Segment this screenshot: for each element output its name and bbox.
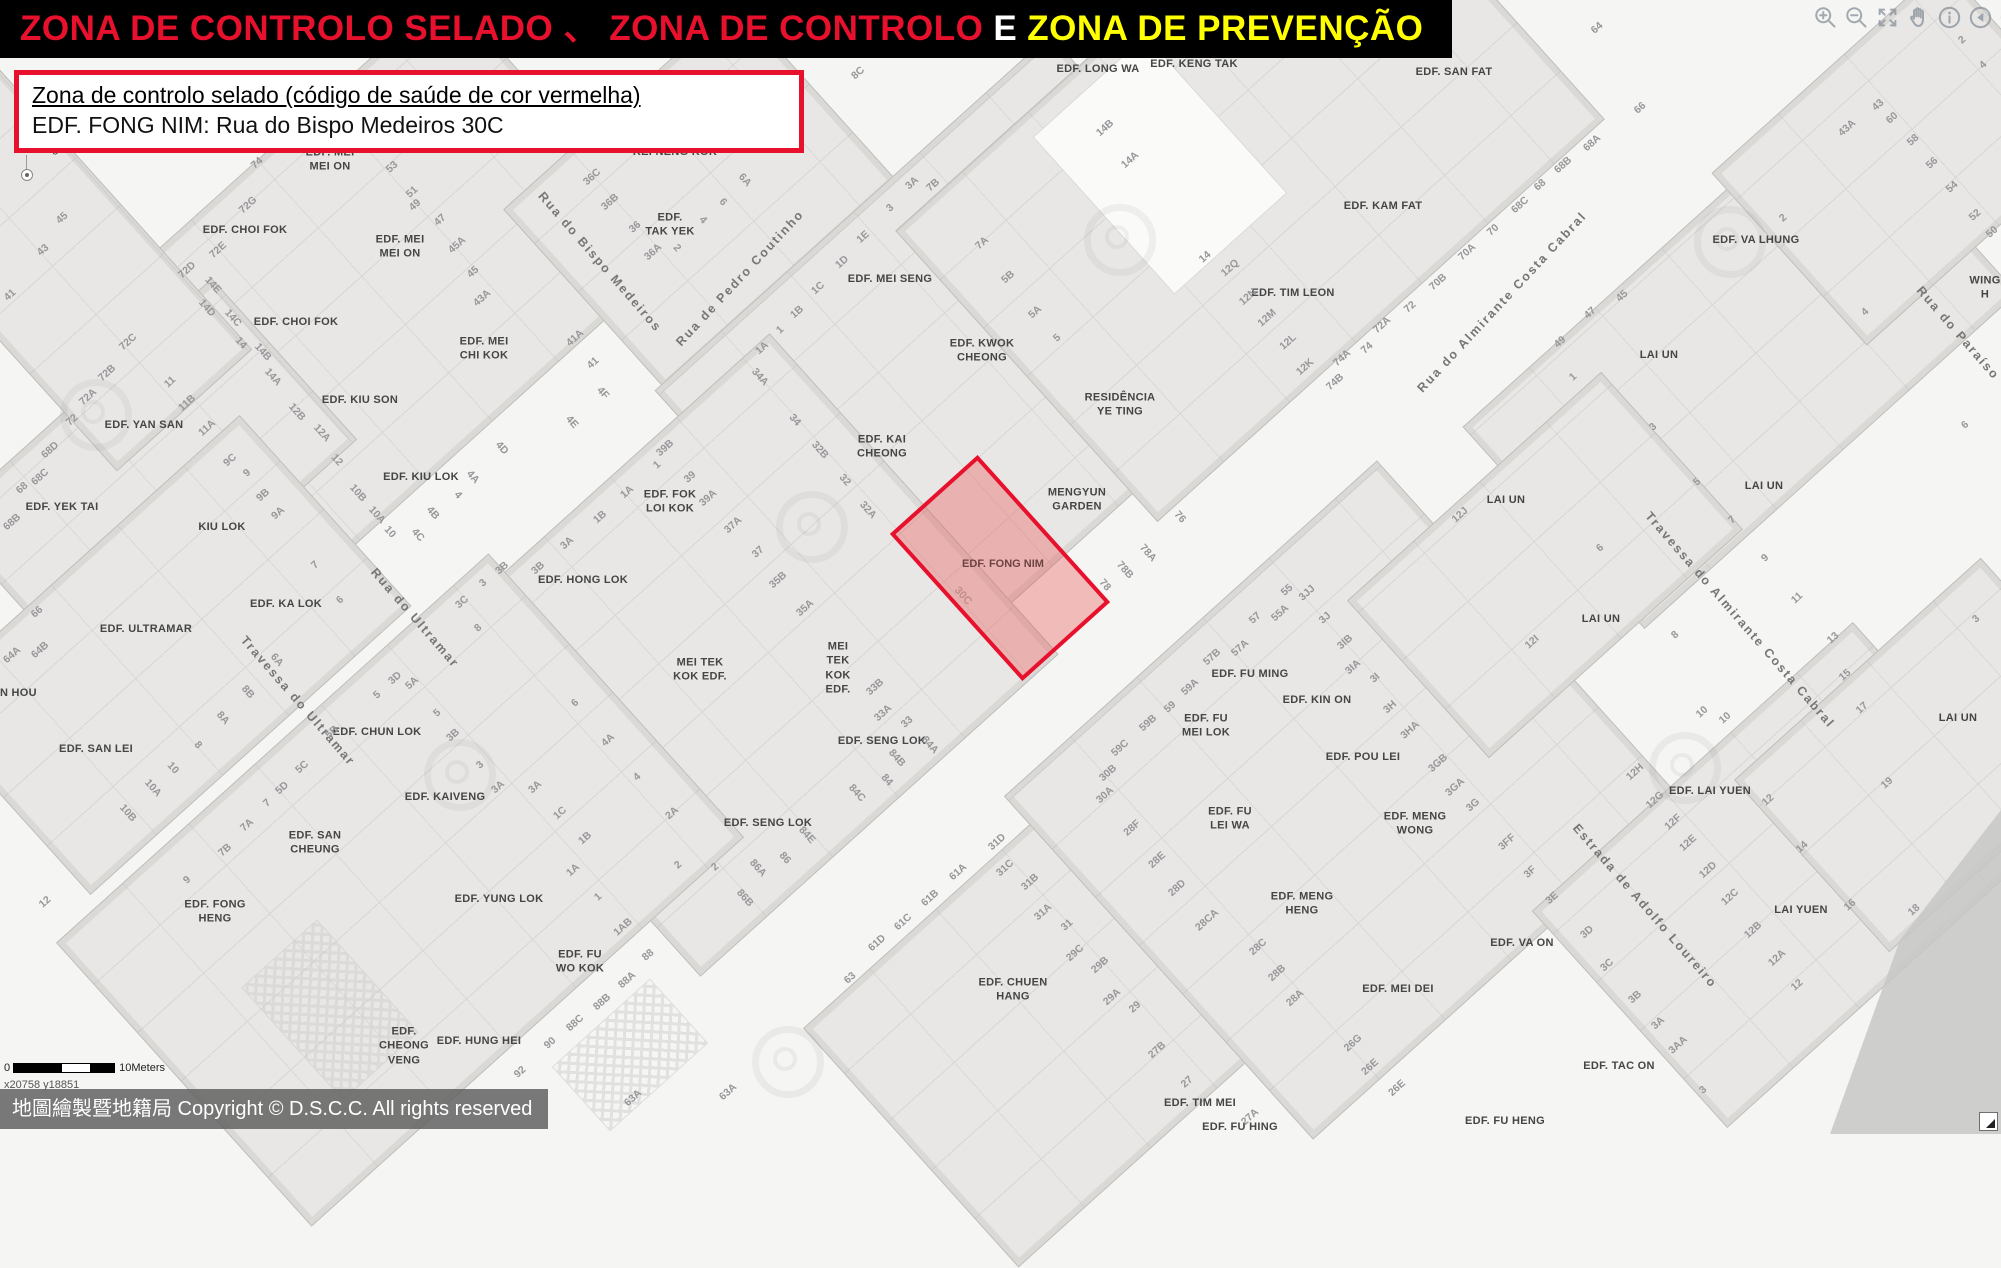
building-label: EDF. MEI SENG (848, 272, 933, 286)
lot-number: 66 (1632, 100, 1649, 117)
banner-white-text: E (983, 9, 1027, 48)
watermark-icon (776, 491, 848, 563)
building-label: LAI YUEN (1774, 903, 1828, 917)
lot-number: 88C (564, 1012, 586, 1034)
watermark-icon (752, 1026, 824, 1098)
scale-start-label: 0 (4, 1062, 10, 1074)
identify-button[interactable] (1936, 4, 1963, 31)
overview-map-toggle[interactable] (1979, 1112, 1998, 1131)
building-label: EDF. FU LEI WA (1208, 805, 1252, 834)
lot-number: 61A (947, 861, 969, 883)
building-label: EDF. KWOK CHEONG (950, 337, 1014, 366)
building-label: EDF. ULTRAMAR (100, 622, 192, 636)
lot-number: 11 (1789, 590, 1805, 606)
building-label: LAI UN (1939, 711, 1977, 725)
title-banner: ZONA DE CONTROLO SELADO 、 ZONA DE CONTRO… (0, 0, 1452, 58)
building-label: EDF. YUNG LOK (455, 892, 544, 906)
building-label: EDF. TAK YEK (645, 211, 694, 240)
lot-number: 10 (1694, 704, 1711, 721)
building-label: EDF. SAN LEI (59, 742, 133, 756)
lot-number: 72 (1402, 299, 1419, 316)
lot-number: 10 (382, 524, 399, 541)
building-label: MEI TEK KOK EDF. (825, 639, 850, 696)
building-label: EDF. KA LOK (250, 597, 322, 611)
building-label: EDF. MENG WONG (1384, 810, 1447, 839)
building-label: EDF. KAIVENG (405, 790, 486, 804)
lot-number: 88A (616, 969, 638, 991)
lot-number: 88 (640, 947, 657, 964)
building-label: LAI UN (1582, 612, 1620, 626)
info-line-zone: Zona de controlo selado (código de saúde… (32, 82, 786, 109)
building-label: MEI TEK KOK EDF. (673, 656, 727, 685)
building-label: ON HOU (0, 686, 37, 700)
building-label: EDF. MEI DEI (1362, 982, 1433, 996)
building-label: EDF. LAI YUEN (1669, 784, 1751, 798)
building-label: EDF. YAN SAN (105, 418, 184, 432)
building-label: EDF. CHEONG VENG (379, 1025, 429, 1068)
lot-number: 74 (1359, 340, 1376, 357)
lot-number: 78B (1114, 559, 1136, 581)
building-label: EDF. FU WO KOK (556, 948, 604, 977)
info-line-address: EDF. FONG NIM: Rua do Bispo Medeiros 30C (32, 112, 786, 139)
building-label: RESIDÊNCIA YE TING (1085, 391, 1156, 420)
sealed-zone-label: EDF. FONG NIM (962, 558, 1044, 570)
building-label: EDF. MENG HENG (1271, 890, 1334, 919)
building-label: EDF. HONG LOK (538, 573, 628, 587)
zoom-in-button[interactable] (1812, 4, 1839, 31)
map-toolbar (1812, 4, 2001, 31)
building-label: EDF. POU LEI (1326, 750, 1401, 764)
building-label: EDF. MEI CHI KOK (460, 335, 509, 364)
building-label: EDF. TAC ON (1583, 1059, 1655, 1073)
lot-number: 4D (493, 439, 511, 457)
building-label: WING H (1969, 274, 2000, 303)
building-label: EDF. SAN FAT (1416, 65, 1493, 79)
map-canvas[interactable]: EDF. FONG NIM 30C EDF. MEI MEI ONEDF. CH… (0, 0, 2001, 1134)
building-label: EDF. CHUN LOK (333, 725, 422, 739)
building-label: EDF. TIM LEON (1251, 286, 1334, 300)
lot-number: 4C (409, 526, 427, 544)
lot-number: 9 (1759, 552, 1771, 565)
lot-number: 4E (563, 413, 581, 431)
building-label: EDF. KIU LOK (383, 470, 459, 484)
zoom-out-button[interactable] (1843, 4, 1870, 31)
watermark-icon (1084, 204, 1156, 276)
building-label: KIU LOK (198, 520, 245, 534)
lot-number: 92 (512, 1064, 529, 1081)
building-label: LAI UN (1745, 479, 1783, 493)
building-label: EDF. VA LHUNG (1712, 233, 1799, 247)
lot-number: 63A (717, 1081, 739, 1103)
building-label: EDF. KENG TAK (1150, 57, 1237, 71)
scale-bar: 0 10Meters (4, 1062, 165, 1074)
lot-number: 74B (1324, 371, 1346, 393)
layer-radio-icon[interactable] (21, 169, 33, 181)
building-label: LAI UN (1640, 348, 1678, 362)
lot-number: 61D (866, 932, 888, 954)
building-label: EDF. CHOI FOK (254, 315, 339, 329)
previous-extent-button[interactable] (1967, 4, 1994, 31)
lot-number: 4 (452, 489, 465, 501)
pan-hand-button[interactable] (1905, 4, 1932, 31)
copyright-bar: 地圖繪製暨地籍局 Copyright © D.S.C.C. All rights… (0, 1089, 548, 1129)
lot-number: 90 (542, 1035, 559, 1052)
building-label: EDF. KAI CHEONG (857, 433, 907, 462)
sealed-zone-info-box: Zona de controlo selado (código de saúde… (14, 70, 804, 153)
lot-number: 41 (585, 355, 602, 372)
building-label: EDF. VA ON (1490, 936, 1554, 950)
lot-number: 76 (1172, 509, 1189, 526)
building-label: EDF. FU HENG (1465, 1114, 1545, 1128)
lot-number: 10 (1717, 710, 1734, 727)
lot-number: 8C (849, 64, 867, 82)
building-label: EDF. KAM FAT (1344, 199, 1423, 213)
lot-number: 8 (1669, 629, 1681, 642)
lot-number: 4F (594, 384, 611, 401)
building-label: EDF. TIM MEI (1164, 1096, 1236, 1110)
scale-bar-graphic (13, 1063, 115, 1073)
building-label: EDF. CHUEN HANG (978, 976, 1047, 1005)
banner-yellow-text: ZONA DE PREVENÇÃO (1027, 9, 1423, 48)
building-label: EDF. KIU SON (322, 393, 398, 407)
building-label: EDF. SENG LOK (838, 734, 926, 748)
building-label: EDF. FONG HENG (184, 898, 245, 927)
full-extent-button[interactable] (1874, 4, 1901, 31)
lot-number: 88B (591, 991, 613, 1013)
building-label: EDF. FU HING (1202, 1120, 1278, 1134)
building-label: EDF. LONG WA (1056, 62, 1139, 76)
building-label: EDF. MEI MEI ON (376, 233, 425, 262)
building-label: LAI UN (1487, 493, 1525, 507)
lot-number: 64 (1589, 20, 1606, 37)
building-label: EDF. FU MEI LOK (1182, 712, 1230, 741)
building-label: EDF. YEK TAI (26, 500, 99, 514)
building-label: MENGYUN GARDEN (1048, 486, 1106, 515)
lot-number: 78A (1137, 542, 1159, 564)
lot-number: 4A (464, 468, 482, 486)
lot-number: 12 (37, 894, 54, 911)
scale-end-label: 10Meters (119, 1062, 165, 1074)
lot-number: 26E (1386, 1077, 1408, 1098)
banner-red-text: ZONA DE CONTROLO SELADO 、 ZONA DE CONTRO… (20, 9, 983, 48)
building-label: EDF. CHOI FOK (203, 223, 288, 237)
lot-number: 4B (424, 504, 442, 522)
building-label: EDF. FU MING (1212, 667, 1289, 681)
building-label: EDF. HUNG HEI (437, 1034, 522, 1048)
building-label: EDF. SAN CHEUNG (289, 829, 342, 858)
lot-number: 6 (1959, 419, 1971, 432)
building-label: EDF. KIN ON (1283, 693, 1352, 707)
building-label: EDF. FOK LOI KOK (644, 488, 697, 517)
